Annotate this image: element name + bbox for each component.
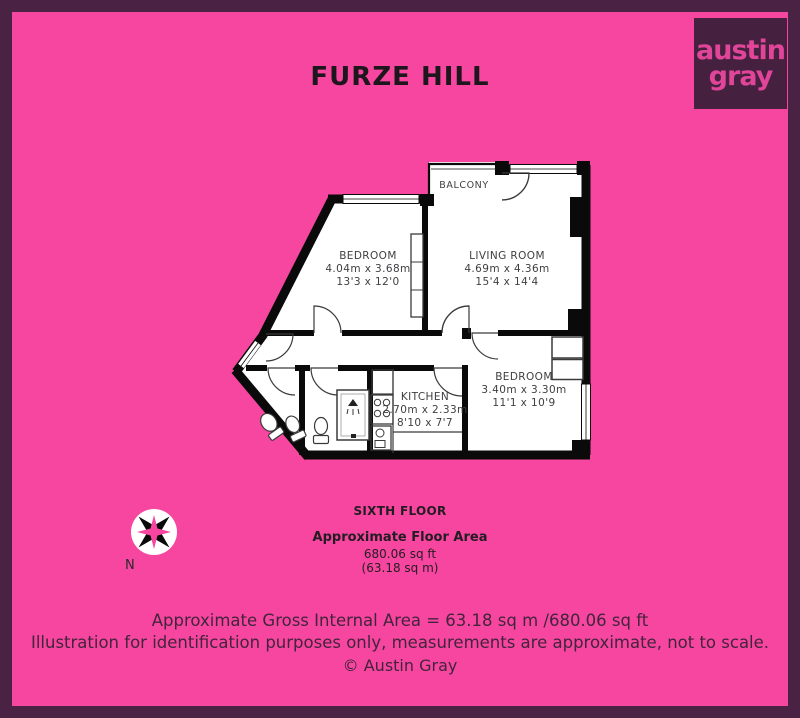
svg-text:BEDROOM: BEDROOM: [495, 371, 553, 383]
svg-text:LIVING ROOM: LIVING ROOM: [469, 250, 545, 262]
floor-name: SIXTH FLOOR: [12, 504, 788, 518]
room-label-balcony: BALCONY: [439, 180, 489, 191]
svg-text:2.70m x 2.33m: 2.70m x 2.33m: [382, 404, 467, 416]
footer-line-1: Approximate Gross Internal Area = 63.18 …: [12, 610, 788, 632]
svg-text:KITCHEN: KITCHEN: [401, 391, 449, 403]
svg-text:4.69m x 4.36m: 4.69m x 4.36m: [464, 263, 549, 275]
svg-text:BEDROOM: BEDROOM: [339, 250, 397, 262]
svg-text:13'3 x 12'0: 13'3 x 12'0: [336, 276, 399, 288]
area-heading: Approximate Floor Area: [12, 530, 788, 545]
room-label-living-room: LIVING ROOM 4.69m x 4.36m 15'4 x 14'4: [464, 250, 549, 288]
shower-fixture: [337, 390, 369, 440]
svg-text:15'4 x 14'4: 15'4 x 14'4: [475, 276, 538, 288]
footer-line-3: © Austin Gray: [12, 654, 788, 677]
svg-text:8'10 x 7'7: 8'10 x 7'7: [397, 417, 453, 429]
svg-text:3.40m x 3.30m: 3.40m x 3.30m: [481, 384, 566, 396]
area-sqm: (63.18 sq m): [12, 561, 788, 575]
footer-line-2: Illustration for identification purposes…: [12, 632, 788, 654]
floor-info: SIXTH FLOOR Approximate Floor Area 680.0…: [12, 504, 788, 575]
svg-text:4.04m x 3.68m: 4.04m x 3.68m: [325, 263, 410, 275]
floorplan-page: FURZE HILL austin gray: [0, 0, 800, 718]
footer-disclaimer: Approximate Gross Internal Area = 63.18 …: [12, 610, 788, 677]
svg-text:11'1 x 10'9: 11'1 x 10'9: [492, 397, 555, 409]
area-sqft: 680.06 sq ft: [12, 547, 788, 561]
